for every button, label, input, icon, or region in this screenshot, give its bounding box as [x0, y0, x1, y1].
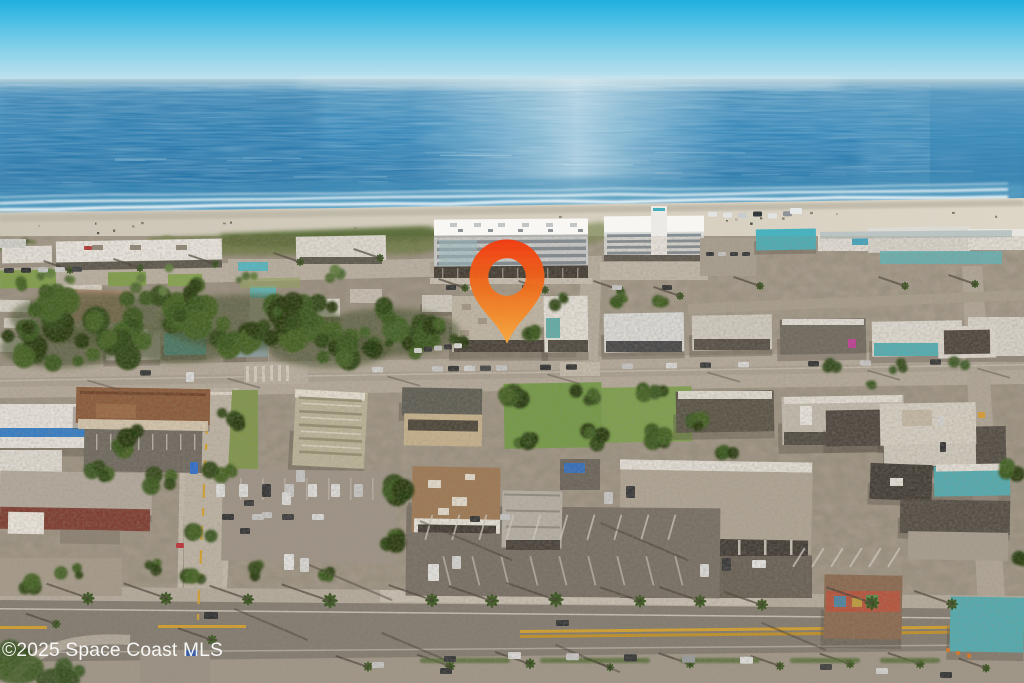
svg-text:©2025 Space Coast MLS: ©2025 Space Coast MLS	[2, 640, 223, 661]
